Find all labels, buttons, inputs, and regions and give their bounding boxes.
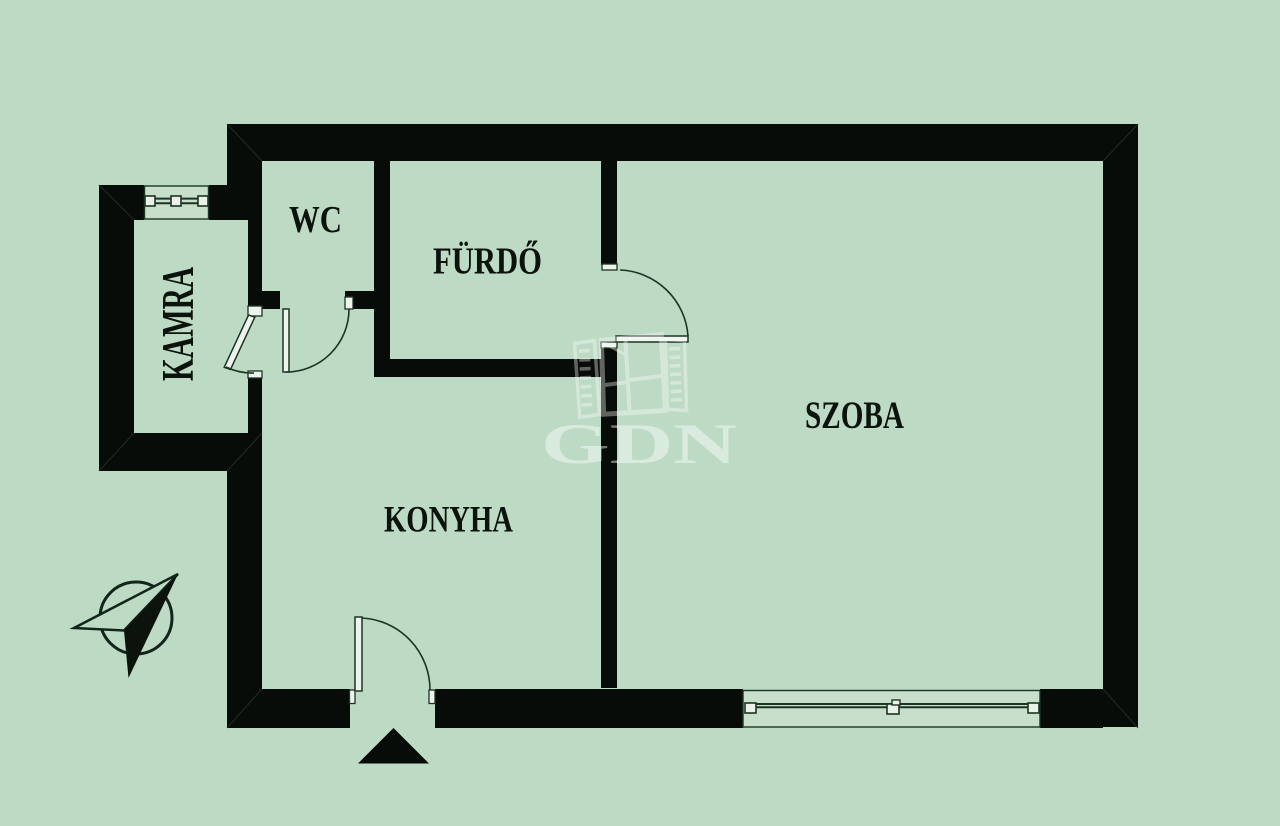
svg-text:GDN: GDN — [541, 413, 737, 476]
svg-text:FÜRDŐ: FÜRDŐ — [433, 240, 542, 283]
svg-text:SZOBA: SZOBA — [805, 394, 904, 437]
svg-text:KONYHA: KONYHA — [384, 500, 513, 541]
svg-text:KAMRA: KAMRA — [153, 267, 203, 381]
svg-text:WC: WC — [289, 199, 342, 241]
